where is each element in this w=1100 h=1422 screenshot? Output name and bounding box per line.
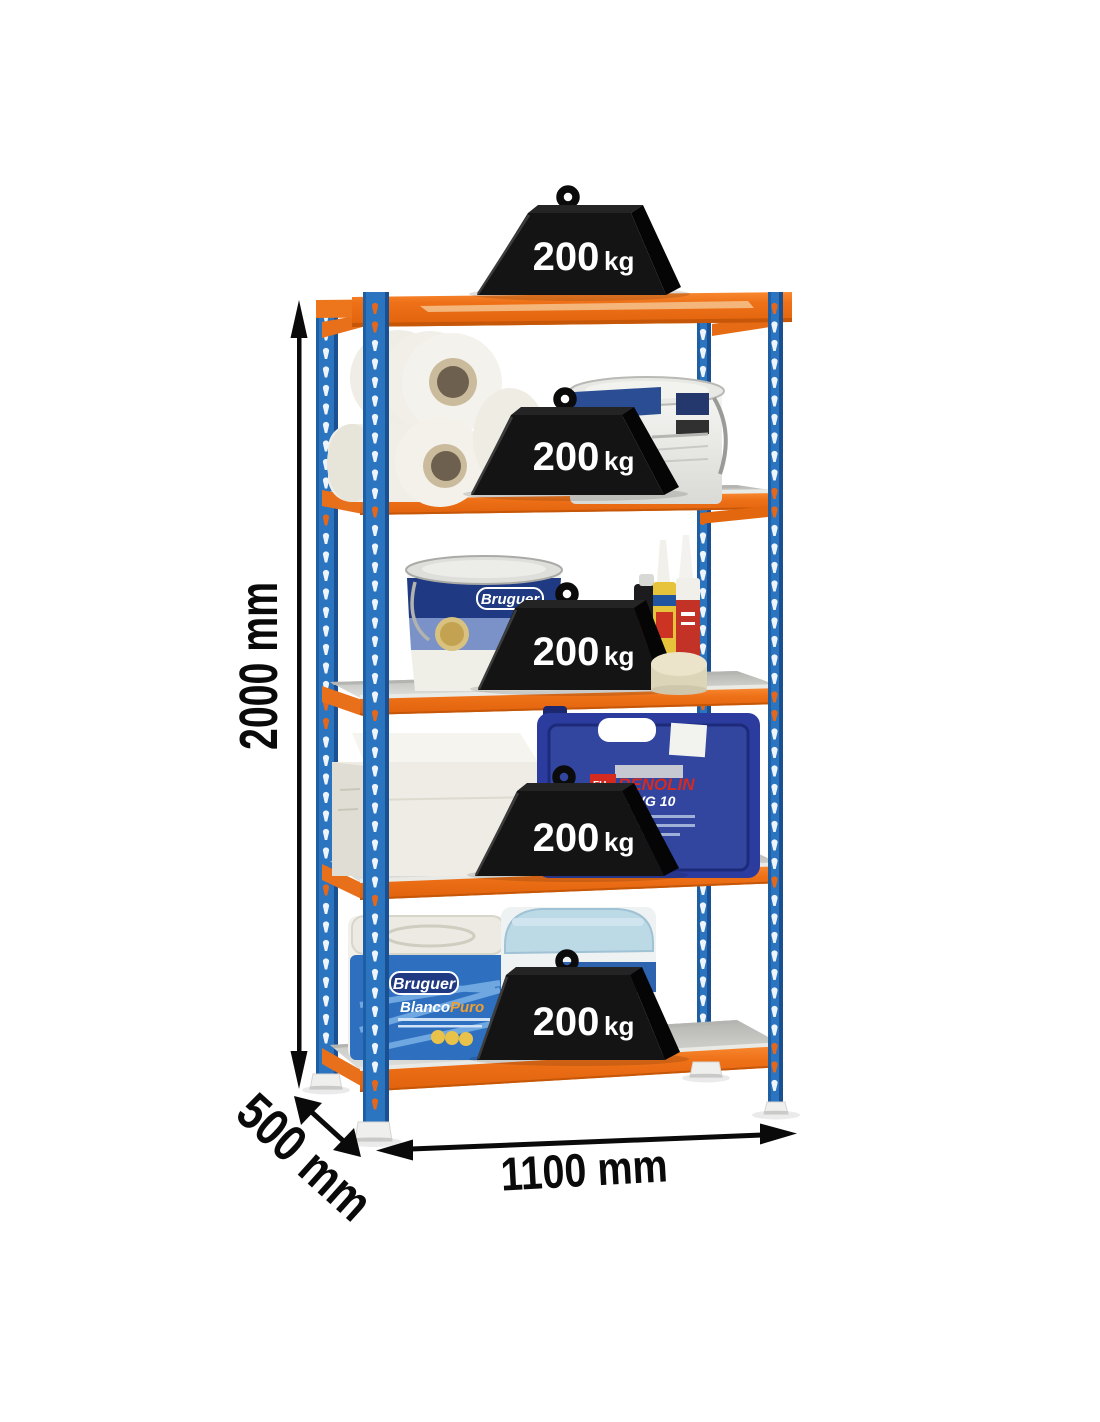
svg-text:1100 mm: 1100 mm bbox=[499, 1138, 669, 1200]
svg-text:200: 200 bbox=[533, 816, 600, 860]
svg-text:200: 200 bbox=[533, 435, 600, 479]
svg-text:kg: kg bbox=[604, 1011, 634, 1041]
svg-text:kg: kg bbox=[604, 641, 634, 671]
svg-text:200: 200 bbox=[533, 1000, 600, 1044]
svg-text:BlancoPuro: BlancoPuro bbox=[400, 999, 484, 1016]
svg-text:kg: kg bbox=[604, 446, 634, 476]
svg-text:Bruguer: Bruguer bbox=[393, 976, 456, 993]
svg-text:2000 mm: 2000 mm bbox=[229, 582, 289, 750]
svg-text:200: 200 bbox=[533, 630, 600, 674]
svg-text:kg: kg bbox=[604, 827, 634, 857]
svg-text:200: 200 bbox=[533, 235, 600, 279]
svg-text:kg: kg bbox=[604, 246, 634, 276]
